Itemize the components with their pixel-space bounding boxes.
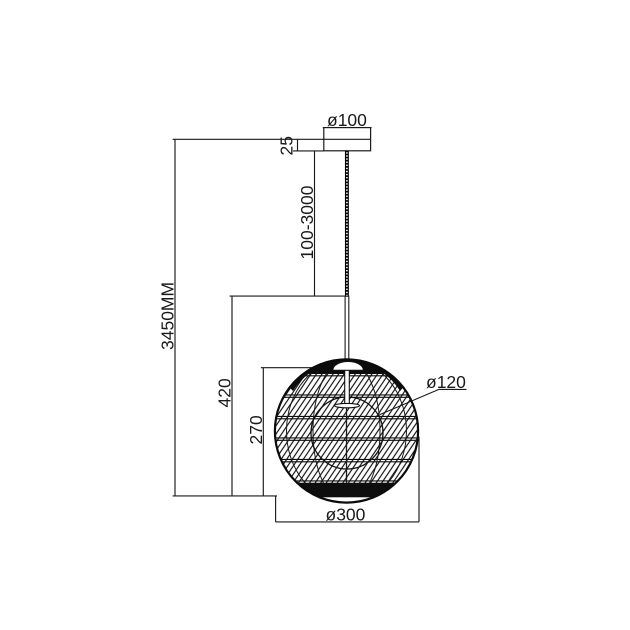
svg-text:270: 270 — [246, 415, 266, 444]
svg-text:420: 420 — [215, 378, 235, 407]
svg-text:ø120: ø120 — [426, 372, 466, 392]
svg-text:100-3000: 100-3000 — [297, 185, 317, 259]
svg-text:3450MM: 3450MM — [158, 282, 178, 350]
svg-text:ø300: ø300 — [326, 505, 366, 525]
svg-text:ø100: ø100 — [327, 110, 367, 130]
svg-text:25: 25 — [277, 136, 297, 155]
